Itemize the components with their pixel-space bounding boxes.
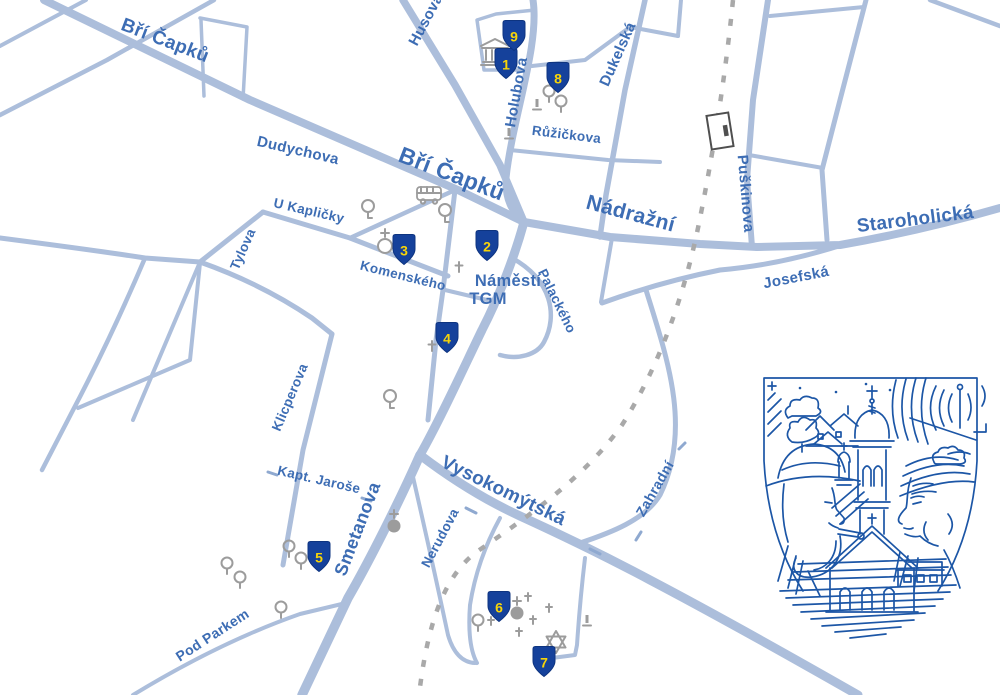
svg-text:2: 2 bbox=[483, 239, 491, 255]
street-label-josefska: Josefská bbox=[762, 263, 831, 292]
railway-station-icon bbox=[706, 112, 733, 149]
grave-cross-icon bbox=[546, 604, 552, 612]
street-label-pod-parkem: Pod Parkem bbox=[173, 605, 252, 664]
street-label-puskinova: Puškinova bbox=[734, 154, 758, 233]
street-label-zahradni: Zahradní bbox=[632, 457, 677, 519]
tree-icon bbox=[276, 602, 287, 619]
grave-cross-icon bbox=[488, 617, 494, 625]
street-label-tylova: Tylova bbox=[227, 226, 259, 272]
tree-icon bbox=[556, 96, 567, 113]
square-label-namesti: Náměstí bbox=[475, 272, 542, 290]
svg-text:6: 6 bbox=[495, 600, 503, 616]
street-to-klicperova bbox=[200, 262, 332, 334]
svg-text:3: 3 bbox=[400, 243, 408, 259]
street-ruzickova bbox=[510, 150, 660, 162]
svg-text:5: 5 bbox=[315, 550, 323, 566]
street-label-u-kaplicky: U Kapličky bbox=[272, 195, 346, 226]
marker-8[interactable]: 8 bbox=[547, 63, 569, 93]
church-icon bbox=[511, 597, 524, 620]
chapel-icon bbox=[378, 229, 392, 253]
tree-icon bbox=[296, 553, 307, 570]
street-label-kapt-jarose: Kapt. Jaroše bbox=[276, 463, 362, 497]
street-nadrazni-josefska-link bbox=[601, 238, 612, 302]
street-connector-top-right bbox=[770, 7, 864, 16]
map-canvas: Bří Čapků Husova Holubova Růžičkova Duke… bbox=[0, 0, 1000, 695]
marker-7[interactable]: 7 bbox=[533, 647, 555, 677]
street-nerudova bbox=[413, 477, 475, 663]
svg-text:1: 1 bbox=[502, 57, 510, 73]
tree-icon bbox=[384, 390, 396, 408]
tree-icon bbox=[362, 200, 374, 218]
marker-9[interactable]: 9 bbox=[503, 21, 525, 51]
marker-4[interactable]: 4 bbox=[436, 323, 458, 353]
tree-icon bbox=[235, 572, 246, 589]
street-label-nadrazni: Nádražní bbox=[584, 191, 679, 237]
street-left-curve bbox=[42, 258, 145, 470]
svg-text:9: 9 bbox=[510, 29, 518, 45]
street-label-ruzickova: Růžičkova bbox=[531, 123, 602, 146]
street-connector-mid-right bbox=[749, 155, 823, 168]
street-left-diagonal bbox=[78, 263, 200, 408]
street-zahradni bbox=[580, 290, 676, 543]
street-corner-nw bbox=[0, 0, 86, 46]
svg-text:4: 4 bbox=[443, 331, 451, 347]
tree-icon bbox=[222, 558, 233, 575]
grave-cross-icon bbox=[525, 593, 531, 601]
street-east-of-rail bbox=[822, 0, 866, 240]
street-cemetery-east bbox=[552, 558, 585, 658]
town-map: Bří Čapků Husova Holubova Růžičkova Duke… bbox=[0, 0, 1000, 695]
street-label-palackeho: Palackého bbox=[535, 267, 579, 336]
street-bri-capku bbox=[44, 0, 524, 222]
grave-cross-icon bbox=[456, 262, 463, 272]
monument-icon bbox=[533, 99, 541, 110]
street-label-dudychova: Dudychova bbox=[255, 133, 341, 168]
grave-cross-icon bbox=[530, 616, 536, 624]
marker-2[interactable]: 2 bbox=[476, 231, 498, 261]
street-label-klicperova: Klicperova bbox=[269, 361, 311, 433]
monument-icon bbox=[583, 615, 591, 626]
holice-town-emblem bbox=[764, 378, 986, 638]
svg-text:7: 7 bbox=[540, 655, 548, 671]
marker-5[interactable]: 5 bbox=[308, 542, 330, 572]
svg-text:8: 8 bbox=[554, 71, 562, 87]
square-label-tgm: TGM bbox=[469, 290, 507, 308]
tree-icon bbox=[473, 615, 484, 632]
street-dukelska-stub bbox=[678, 0, 681, 36]
street-left-long bbox=[0, 238, 200, 262]
street-label-ticks bbox=[268, 443, 685, 554]
street-corner-top-right bbox=[930, 0, 1000, 26]
grave-cross-icon bbox=[516, 628, 522, 636]
